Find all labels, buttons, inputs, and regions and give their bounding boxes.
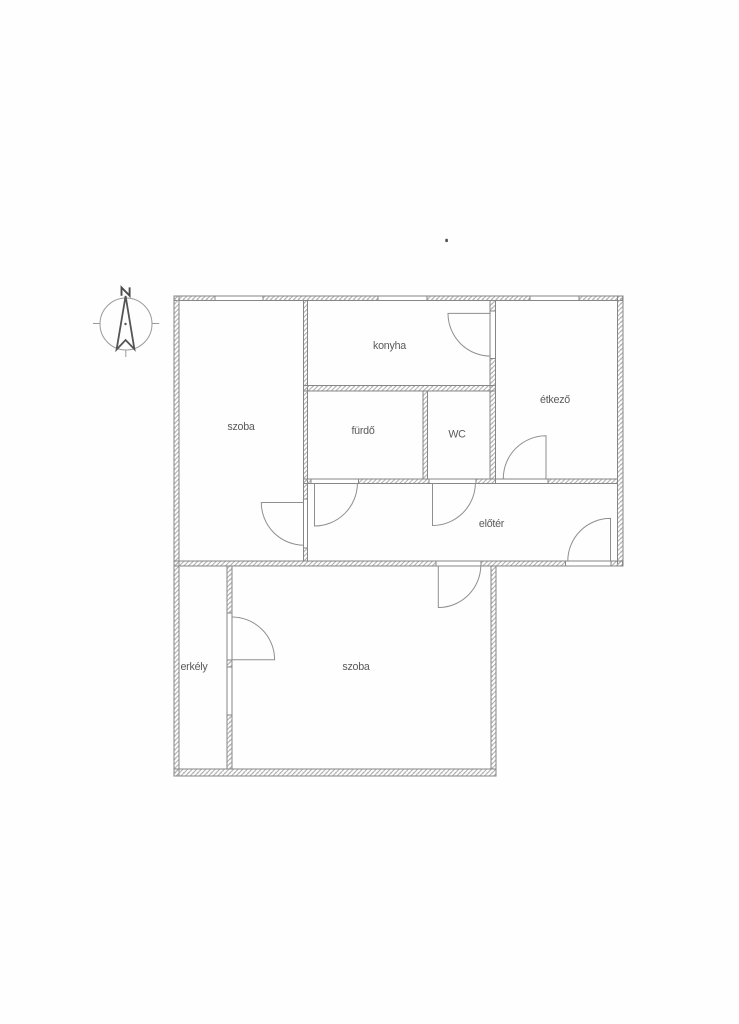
svg-text:étkező: étkező	[540, 394, 570, 406]
svg-text:konyha: konyha	[373, 340, 406, 352]
svg-text:erkély: erkély	[180, 661, 208, 673]
svg-text:szoba: szoba	[342, 661, 370, 673]
svg-text:fürdő: fürdő	[351, 425, 374, 437]
svg-text:WC: WC	[448, 429, 466, 441]
svg-text:előtér: előtér	[479, 518, 505, 530]
svg-text:szoba: szoba	[227, 421, 255, 433]
